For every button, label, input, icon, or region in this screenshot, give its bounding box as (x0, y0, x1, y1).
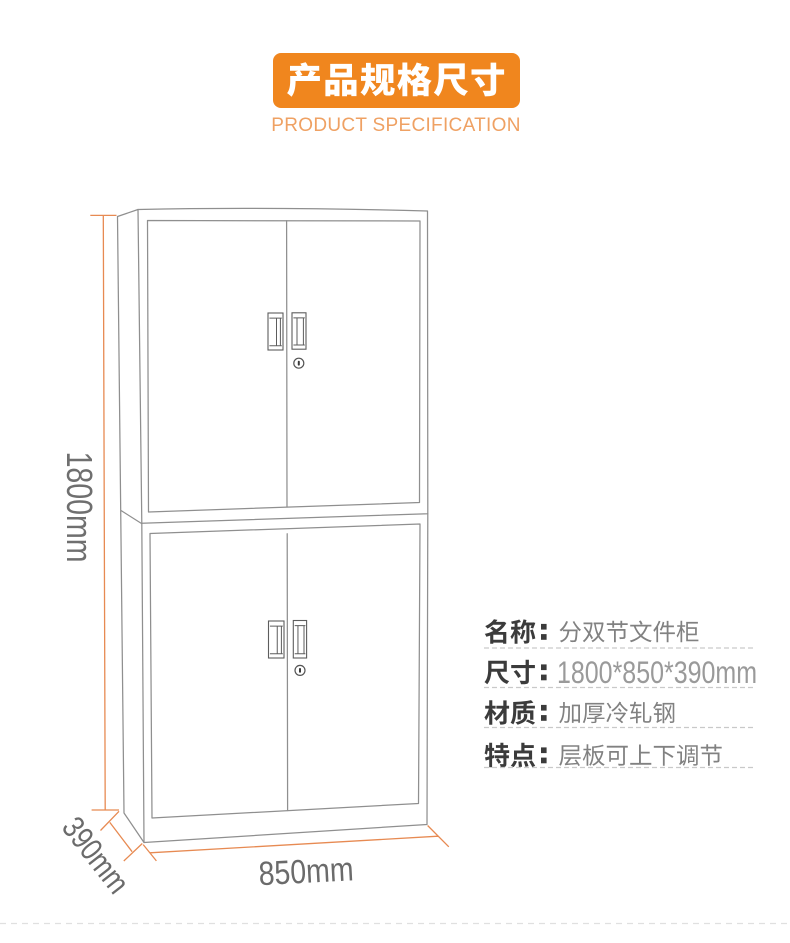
svg-text:850mm: 850mm (258, 850, 355, 893)
svg-text:390mm: 390mm (55, 811, 136, 901)
svg-text:1800mm: 1800mm (59, 452, 100, 563)
svg-text:1800*850*390mm: 1800*850*390mm (557, 654, 757, 689)
svg-text:PRODUCT SPECIFICATION: PRODUCT SPECIFICATION (271, 115, 520, 136)
